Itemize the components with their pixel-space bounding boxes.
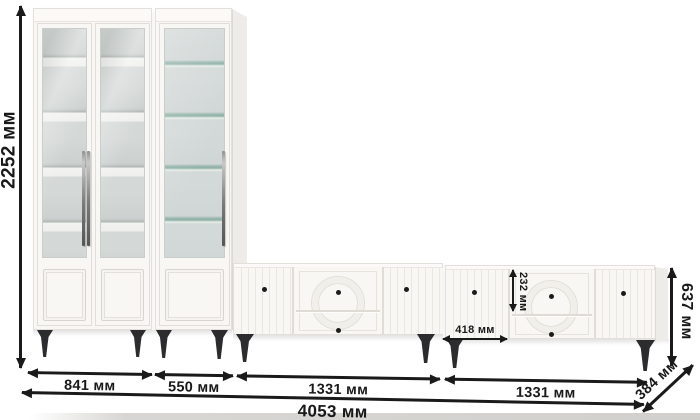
glass-pane-shelves bbox=[164, 28, 225, 258]
circle-motif bbox=[312, 277, 364, 329]
dim-637-arrow bbox=[670, 268, 673, 366]
glass-pane bbox=[42, 28, 87, 258]
drawer-knob bbox=[549, 294, 554, 299]
tv-stand-left-shadow bbox=[233, 335, 443, 341]
door-panel-molding bbox=[43, 269, 86, 321]
tv-stand-right-side bbox=[655, 267, 668, 341]
grooved-door bbox=[384, 268, 443, 334]
bookcase-crown bbox=[34, 9, 151, 22]
door-handle bbox=[222, 151, 225, 246]
glass-pane bbox=[100, 28, 145, 258]
dim-1331-left-arrow bbox=[237, 374, 440, 380]
door-panel-molding bbox=[101, 269, 144, 321]
door-knob bbox=[472, 290, 477, 295]
grooved-door bbox=[596, 270, 655, 338]
dim-418-label: 418 мм bbox=[443, 325, 507, 336]
circle-motif bbox=[525, 281, 577, 333]
dim-841-arrow bbox=[28, 371, 152, 376]
dim-1331-right-arrow bbox=[445, 378, 647, 384]
door-handle bbox=[87, 151, 90, 246]
glass-door-right bbox=[95, 23, 150, 326]
door-panel-molding bbox=[165, 269, 224, 321]
drawer-divider bbox=[512, 314, 592, 316]
glass-door bbox=[159, 23, 230, 326]
display-cabinet bbox=[155, 8, 232, 330]
dim-418-arrow bbox=[443, 338, 507, 340]
dim-depth-wrap: 384 мм bbox=[642, 364, 694, 413]
door-knob bbox=[621, 291, 626, 296]
drawer-knob bbox=[336, 328, 341, 333]
dim-height-label: 2252 мм bbox=[0, 111, 19, 189]
drawer-knob bbox=[336, 290, 341, 295]
tv-stand-left bbox=[233, 263, 443, 335]
dim-637-label: 637 мм bbox=[678, 283, 694, 340]
dim-550-arrow bbox=[155, 373, 233, 377]
drawer-section bbox=[294, 267, 382, 334]
dim-232-arrow bbox=[512, 270, 514, 311]
grooved-door bbox=[235, 268, 292, 334]
dim-232-label: 232 мм bbox=[517, 272, 528, 311]
drawer-divider bbox=[296, 310, 380, 312]
door-knob bbox=[404, 287, 409, 292]
door-handle bbox=[82, 151, 85, 246]
drawer-knob bbox=[549, 332, 554, 337]
door-knob bbox=[262, 287, 267, 292]
bookcase-double bbox=[33, 8, 152, 330]
display-cabinet-crown bbox=[156, 9, 231, 22]
product-dimension-diagram: 2252 мм 841 мм 550 мм 1331 мм 1331 мм 40… bbox=[0, 0, 700, 420]
